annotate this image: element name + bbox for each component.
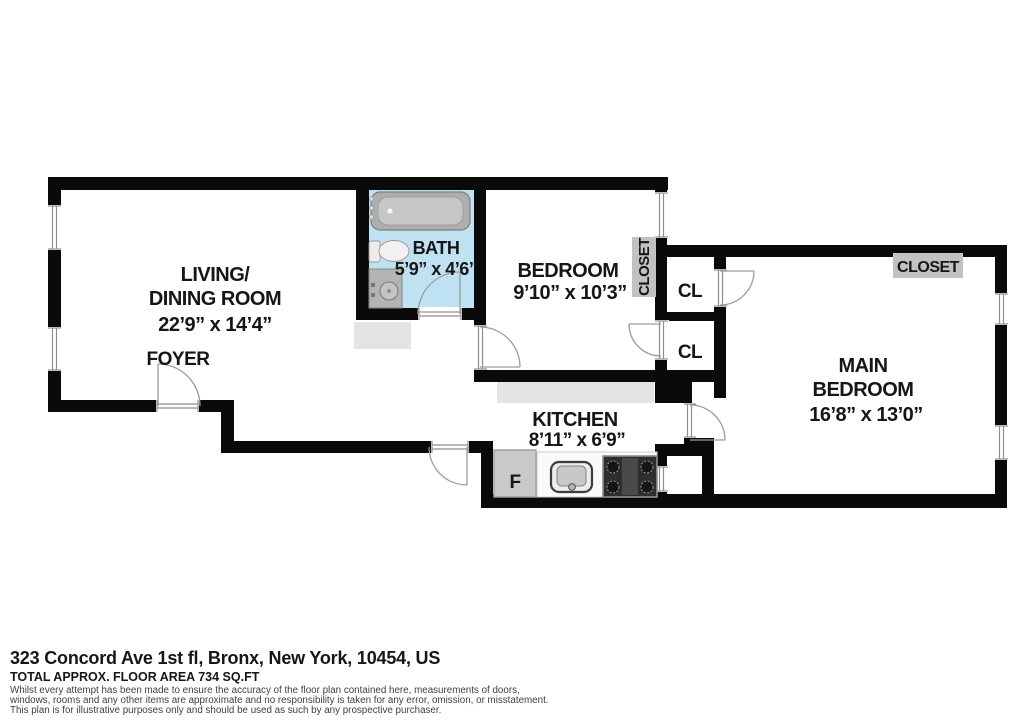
closet-bottom-label: CL — [678, 342, 703, 363]
wall-bedroom-right-c — [655, 360, 667, 382]
wall-main-right-a — [995, 245, 1007, 293]
foyer-label: FOYER — [147, 349, 211, 370]
wall-bottom-left-a — [48, 400, 156, 412]
fridge-label: F — [509, 472, 520, 493]
wall-bedroom-left — [474, 177, 486, 325]
wall-block-below-closet — [655, 382, 692, 403]
window-bedroom-right — [654, 192, 669, 238]
kitchen-counter-top — [497, 382, 654, 403]
window-main-right-2 — [994, 425, 1009, 460]
kitchen-dims: 8’11” x 6’9” — [529, 430, 625, 451]
door-threshold-passage — [683, 403, 697, 438]
closet-main-label: CLOSET — [897, 259, 960, 276]
bedroom-dims: 9’10” x 10’3” — [513, 282, 627, 304]
wall-left-b — [48, 250, 61, 327]
door-threshold-kitchen — [431, 440, 469, 455]
footer-address: 323 Concord Ave 1st fl, Bronx, New York,… — [10, 648, 440, 668]
wall-main-right-b — [995, 325, 1007, 425]
wall-left-a — [48, 177, 61, 205]
window-living-left-1 — [47, 205, 62, 250]
wall-main-bedroom-top — [714, 245, 1007, 257]
main-bedroom-label-2: BEDROOM — [813, 379, 914, 401]
floor-plan-svg: LIVING/ DINING ROOM 22’9” x 14’4” FOYER … — [0, 0, 1024, 723]
floorplan-page: LIVING/ DINING ROOM 22’9” x 14’4” FOYER … — [0, 0, 1024, 723]
door-threshold-closet-bottom — [654, 320, 669, 360]
main-bedroom-label-1: MAIN — [838, 355, 887, 377]
living-room-dims: 22’9” x 14’4” — [158, 314, 272, 336]
footer-disclaimer-3: This plan is for illustrative purposes o… — [10, 705, 441, 716]
wall-main-left-b — [714, 307, 726, 398]
bathtub-icon — [369, 192, 470, 230]
bedroom-label: BEDROOM — [518, 260, 619, 282]
door-threshold-bedroom — [473, 325, 488, 370]
wall-bedroom-right-a — [655, 177, 667, 192]
door-threshold-bath — [418, 307, 462, 322]
wall-bedroom-bottom — [474, 370, 726, 382]
wall-hall-bottom — [221, 441, 431, 453]
main-bedroom-dims: 16’8” x 13’0” — [809, 404, 923, 426]
kitchen-sink-icon — [551, 462, 592, 492]
bath-label: BATH — [413, 238, 460, 258]
closet-bedroom-label: CLOSET — [636, 238, 653, 296]
stove-icon — [603, 456, 657, 497]
wall-bath-bottom-left — [356, 308, 418, 320]
closet-top-label: CL — [678, 281, 703, 302]
footer-area: TOTAL APPROX. FLOOR AREA 734 SQ.FT — [10, 670, 260, 684]
wall-main-right-c — [995, 460, 1007, 508]
door-threshold-foyer — [156, 399, 199, 414]
wall-main-left-a — [714, 257, 726, 269]
door-threshold-closet-top — [713, 269, 728, 307]
window-living-left-2 — [47, 327, 62, 371]
kitchen-label: KITCHEN — [532, 409, 617, 431]
hall-cabinet — [354, 322, 411, 349]
wall-bath-left — [356, 177, 369, 320]
living-room-label-1: LIVING/ — [181, 264, 251, 286]
bath-dims: 5’9” x 4’6” — [395, 259, 478, 279]
wall-shaft-right — [702, 444, 714, 508]
living-room-label-2: DINING ROOM — [149, 288, 281, 310]
window-main-right-1 — [994, 293, 1009, 325]
